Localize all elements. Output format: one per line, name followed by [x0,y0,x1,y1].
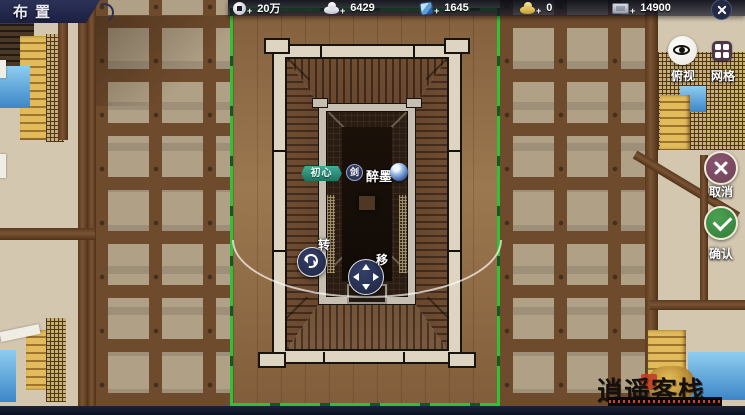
wall-corner-step [448,352,476,368]
inner-wall-corner-step [406,98,422,108]
ceiling-grid-right [500,0,646,406]
grid-toggle-button[interactable] [712,41,732,61]
ceiling-shadow [95,16,230,106]
currency-gold-value: 0 [546,2,552,14]
rotate-icon [302,252,321,271]
plus-icon[interactable]: + [340,6,345,16]
grid-icon [715,44,721,50]
currency-silver[interactable]: + 6429 [324,0,375,16]
currency-silver-value: 6429 [350,2,374,14]
overhead-view-label: 俯视 [666,67,700,84]
banknote-icon [612,3,629,14]
bottom-strip [0,406,745,415]
decor-white-strip [0,154,6,178]
player-name: 醉墨 [366,166,392,185]
confirm-label: 确认 [704,245,738,262]
guild-badge: 初心 [299,166,344,181]
decor-beam [78,0,88,406]
school-icon: 剑 [346,164,363,181]
decor-beam [0,228,95,240]
decor-beam [58,14,68,140]
selection-border-right [497,8,500,406]
overhead-view-button[interactable] [668,36,697,65]
plus-icon[interactable]: + [536,6,541,16]
selection-border-left [230,8,233,406]
wall-seam [272,150,285,152]
selected-building[interactable] [230,8,500,406]
currency-gold[interactable]: + 0 [520,0,552,16]
wall-seam [403,352,405,364]
jade-token-icon [419,1,434,16]
inner-wall-corner-step [312,98,328,108]
plus-icon[interactable]: + [630,6,635,16]
cancel-label: 取消 [704,183,738,200]
decor-roof-tiles-right [660,95,690,150]
game-screen: 初心 剑 醉墨 转 移 + 20万 + 6429 + 1645 + 0 + 14… [0,0,745,415]
mode-title: 布置 [0,1,57,22]
grid-label: 网格 [706,67,740,84]
watermark-subtext-strip [608,397,722,406]
currency-copper[interactable]: + 20万 [233,0,281,16]
confirm-check-icon [713,212,733,232]
plus-icon[interactable]: + [434,6,439,16]
decor-white-strip [0,60,6,78]
wall-corner-step [258,352,286,368]
player-character-top-view [390,163,408,181]
wall-seam [323,352,325,364]
currency-jade[interactable]: + 1645 [420,0,469,16]
wall-corner-step [264,38,290,54]
currency-copper-value: 20万 [257,0,280,16]
silver-ingot-icon [324,6,339,14]
currency-jade-value: 1645 [444,2,468,14]
decor-sky-left-low [0,350,16,402]
wall-seam [320,45,322,57]
close-button[interactable] [711,0,732,20]
copper-coin-icon [233,2,246,15]
altar-table [359,196,375,210]
decor-beam [650,300,745,310]
mode-banner: 布置 [0,0,100,23]
decor-beam [88,0,96,406]
confirm-button[interactable] [704,206,738,240]
cancel-button[interactable] [704,151,738,185]
currency-banknote-value: 14900 [640,2,671,14]
decor-lattice-left-low [46,318,66,402]
wall-seam [413,45,415,57]
currency-banknote[interactable]: + 14900 [612,0,671,16]
plus-icon[interactable]: + [247,6,252,16]
gold-ingot-icon [520,6,535,14]
move-label: 移 [376,251,388,268]
rotate-label: 转 [318,236,330,253]
wall-corner-step [444,38,470,54]
